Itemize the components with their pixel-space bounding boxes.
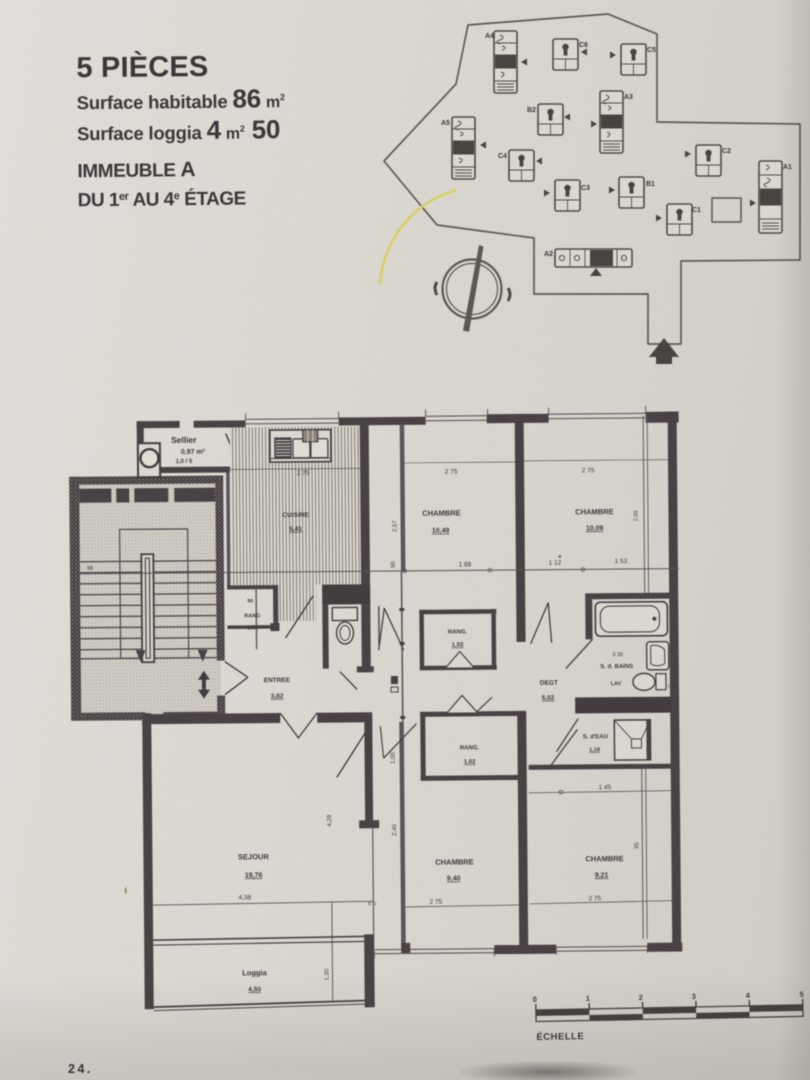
svg-text:LAV: LAV — [611, 681, 622, 687]
svg-text:IMMEUBLE A: IMMEUBLE A — [77, 158, 195, 182]
svg-text:C2: C2 — [722, 148, 731, 155]
svg-text:1 53: 1 53 — [615, 558, 628, 565]
svg-text:4,38: 4,38 — [238, 894, 251, 901]
svg-text:9,21: 9,21 — [595, 872, 609, 879]
svg-text:1,18: 1,18 — [589, 747, 600, 753]
svg-text:2,40: 2,40 — [392, 824, 398, 836]
svg-text:RANG.: RANG. — [448, 629, 468, 635]
svg-text:CHAMBRE: CHAMBRE — [422, 508, 460, 517]
svg-text:S. d'EAU: S. d'EAU — [583, 734, 608, 740]
svg-text:2 75: 2 75 — [445, 468, 458, 475]
svg-text:5 PIÈCES: 5 PIÈCES — [76, 49, 209, 84]
svg-text:3: 3 — [692, 992, 696, 1001]
svg-text:C4: C4 — [498, 153, 507, 160]
svg-text:2 75: 2 75 — [429, 899, 442, 906]
svg-text:2 75: 2 75 — [582, 467, 595, 474]
svg-text:RANG: RANG — [244, 613, 260, 619]
svg-text:A2: A2 — [544, 251, 553, 258]
svg-text:5,02: 5,02 — [542, 695, 555, 702]
svg-text:CUISINE: CUISINE — [282, 512, 309, 519]
svg-text:1 12: 1 12 — [549, 560, 562, 567]
svg-text:S. d. BAINS: S. d. BAINS — [600, 664, 633, 670]
svg-text:35: 35 — [634, 842, 640, 849]
svg-text:1: 1 — [586, 994, 590, 1003]
svg-text:B2: B2 — [527, 107, 536, 114]
svg-text:10,09: 10,09 — [586, 525, 604, 532]
svg-text:5: 5 — [800, 990, 804, 999]
svg-text:o o: o o — [368, 901, 377, 907]
svg-text:3,82: 3,82 — [271, 693, 284, 700]
svg-text:4,28: 4,28 — [327, 814, 333, 826]
svg-text:B1: B1 — [646, 181, 655, 188]
svg-text:4,50: 4,50 — [248, 986, 261, 993]
svg-text:0,97 m²: 0,97 m² — [181, 449, 206, 456]
svg-text:4: 4 — [746, 991, 751, 1000]
svg-text:C3: C3 — [581, 185, 590, 192]
svg-text:5,41: 5,41 — [289, 526, 302, 533]
svg-text:1 88: 1 88 — [459, 561, 472, 568]
svg-text:1,02: 1,02 — [452, 642, 464, 648]
svg-text:CHAMBRE: CHAMBRE — [575, 507, 613, 516]
svg-text:3 26: 3 26 — [612, 652, 623, 658]
svg-text:1,00: 1,00 — [391, 752, 397, 764]
svg-text:2,57: 2,57 — [393, 520, 399, 532]
svg-text:98: 98 — [87, 566, 93, 572]
svg-text:2 75: 2 75 — [588, 895, 601, 902]
svg-text:0: 0 — [533, 995, 537, 1004]
svg-text:2: 2 — [639, 993, 643, 1002]
svg-text:9,40: 9,40 — [447, 875, 461, 882]
svg-text:A1: A1 — [783, 164, 792, 171]
svg-text:1 45: 1 45 — [599, 784, 612, 791]
svg-text:Surface loggia 4 m2 50: Surface loggia 4 m2 50 — [77, 114, 281, 146]
svg-text:10,49: 10,49 — [432, 528, 450, 535]
svg-text:2,00: 2,00 — [633, 511, 639, 522]
svg-text:A4: A4 — [485, 33, 494, 40]
svg-text:1,0 / 5: 1,0 / 5 — [176, 459, 193, 465]
svg-text:1,30: 1,30 — [324, 968, 330, 980]
svg-text:DU 1er AU 4e ÉTAGE: DU 1er AU 4e ÉTAGE — [78, 188, 246, 212]
svg-text:19,76: 19,76 — [245, 872, 263, 879]
svg-text:ÉCHELLE: ÉCHELLE — [536, 1031, 584, 1043]
svg-text:C5: C5 — [647, 47, 656, 54]
svg-text:A3: A3 — [624, 94, 633, 101]
svg-text:1,02: 1,02 — [464, 759, 476, 765]
svg-text:Sellier: Sellier — [171, 435, 197, 445]
svg-text:C1: C1 — [692, 207, 701, 214]
svg-text:C6: C6 — [579, 42, 588, 49]
svg-text:2 75: 2 75 — [297, 470, 310, 477]
svg-text:ENTREE: ENTREE — [264, 677, 291, 684]
svg-text:CHAMBRE: CHAMBRE — [435, 857, 473, 866]
svg-text:90: 90 — [247, 598, 253, 604]
svg-text:DEGT: DEGT — [540, 680, 558, 687]
svg-text:Surface habitable 86 m2: Surface habitable 86 m2 — [77, 83, 286, 115]
svg-text:1,02: 1,02 — [247, 625, 258, 631]
svg-text:A5: A5 — [441, 120, 450, 127]
svg-text:90: 90 — [391, 561, 397, 568]
svg-text:Loggia: Loggia — [242, 968, 267, 977]
svg-text:o o: o o — [668, 684, 676, 690]
svg-text:24.: 24. — [68, 1062, 93, 1076]
svg-text:CHAMBRE: CHAMBRE — [585, 854, 623, 863]
svg-text:RANG.: RANG. — [460, 745, 480, 751]
svg-text:SEJOUR: SEJOUR — [238, 852, 270, 861]
